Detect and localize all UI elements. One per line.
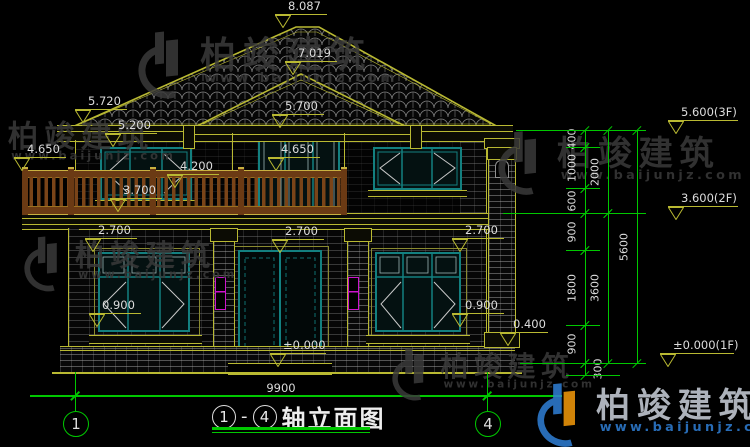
- dimension-chain-line: [585, 130, 586, 375]
- elevation-triangle-icon: [452, 314, 468, 327]
- elevation-triangle-icon: [85, 239, 101, 252]
- drawing-title: 1 - 4 轴立面图: [212, 399, 386, 434]
- elevation-marker: 2.700: [272, 226, 324, 253]
- title-axis-end-bubble: 4: [253, 405, 277, 429]
- level-reference-line: [566, 250, 600, 251]
- elevation-triangle-icon: [668, 121, 684, 134]
- elevation-drawing-canvas: 柏竣建筑www.baijunjz.com柏竣建筑www.baijunjz.com…: [0, 0, 750, 447]
- elevation-marker-label: 5.200: [118, 118, 151, 132]
- annotation-layer: 8.0877.0195.7205.2005.7004.6504.6504.200…: [0, 0, 750, 447]
- dimension-value-label: 600: [566, 190, 579, 211]
- elevation-marker: 8.087: [275, 1, 327, 28]
- elevation-marker-label: 0.900: [465, 298, 498, 312]
- elevation-triangle-icon: [272, 240, 288, 253]
- elevation-marker-label: 5.720: [88, 94, 121, 108]
- dimension-chain-line: [608, 130, 609, 363]
- elevation-marker: 5.600(3F): [668, 107, 738, 134]
- elevation-triangle-icon: [14, 158, 30, 171]
- dimension-chain-line: [637, 130, 638, 363]
- elevation-marker-label: 3.600(2F): [681, 191, 737, 205]
- elevation-triangle-icon: [452, 239, 468, 252]
- elevation-triangle-icon: [275, 15, 291, 28]
- title-axis-start-bubble: 1: [212, 405, 236, 429]
- elevation-marker-label: 4.200: [180, 159, 213, 173]
- elevation-triangle-icon: [167, 175, 183, 188]
- title-text: 轴立面图: [282, 399, 386, 434]
- level-reference-line: [520, 363, 646, 364]
- grid-line-stem: [487, 372, 488, 411]
- level-reference-line: [566, 325, 600, 326]
- elevation-marker-label: ±0.000(1F): [673, 338, 738, 352]
- elevation-marker-label: 2.700: [465, 223, 498, 237]
- elevation-marker-label: ±0.000: [283, 338, 326, 352]
- elevation-marker: 2.700: [452, 225, 504, 252]
- grid-line-stem: [75, 372, 76, 411]
- elevation-marker: 0.900: [452, 300, 504, 327]
- dimension-value-label: 5600: [618, 233, 631, 261]
- elevation-marker: 0.400: [500, 319, 548, 346]
- title-separator: -: [241, 406, 248, 427]
- dimension-value-label: 900: [566, 221, 579, 242]
- level-reference-line: [503, 213, 646, 214]
- dimension-value-label: 2000: [589, 158, 602, 186]
- elevation-marker: 4.650: [268, 144, 320, 171]
- dimension-value-label: 3600: [589, 274, 602, 302]
- elevation-triangle-icon: [500, 333, 516, 346]
- elevation-triangle-icon: [660, 354, 676, 367]
- elevation-triangle-icon: [110, 199, 126, 212]
- elevation-marker: 3.700: [110, 185, 162, 212]
- elevation-triangle-icon: [89, 314, 105, 327]
- elevation-marker: 5.200: [105, 120, 157, 147]
- elevation-marker-label: 0.400: [513, 317, 546, 331]
- grid-bubble: 1: [63, 411, 89, 437]
- elevation-triangle-icon: [105, 134, 121, 147]
- level-reference-line: [516, 130, 646, 131]
- elevation-marker-label: 5.700: [285, 99, 318, 113]
- dimension-value-label: 1000: [566, 154, 579, 182]
- elevation-marker-label: 7.019: [298, 46, 331, 60]
- elevation-marker: ±0.000: [270, 340, 326, 367]
- elevation-marker-label: 3.700: [123, 183, 156, 197]
- elevation-triangle-icon: [75, 110, 91, 123]
- elevation-triangle-icon: [272, 115, 288, 128]
- elevation-marker: 4.200: [167, 161, 219, 188]
- elevation-marker: 0.900: [89, 300, 141, 327]
- dimension-value-label: 1800: [566, 274, 579, 302]
- elevation-marker: 7.019: [285, 48, 337, 75]
- elevation-triangle-icon: [270, 354, 286, 367]
- elevation-marker: 3.600(2F): [668, 193, 738, 220]
- dimension-value-label: 900: [566, 334, 579, 355]
- elevation-marker-label: 4.650: [27, 142, 60, 156]
- elevation-marker: 2.700: [85, 225, 137, 252]
- elevation-triangle-icon: [268, 158, 284, 171]
- elevation-triangle-icon: [668, 207, 684, 220]
- level-reference-line: [566, 188, 600, 189]
- overall-dimension-label: 9900: [255, 381, 307, 395]
- dimension-value-label: 300: [592, 359, 605, 380]
- elevation-marker-label: 8.087: [288, 0, 321, 13]
- elevation-marker-label: 2.700: [285, 224, 318, 238]
- elevation-triangle-icon: [285, 62, 301, 75]
- elevation-marker-label: 4.650: [281, 142, 314, 156]
- elevation-marker: 4.650: [14, 144, 66, 171]
- elevation-marker-label: 2.700: [98, 223, 131, 237]
- level-reference-line: [566, 147, 600, 148]
- elevation-marker-label: 5.600(3F): [681, 105, 737, 119]
- grid-bubble: 4: [475, 411, 501, 437]
- dimension-value-label: 400: [566, 128, 579, 149]
- elevation-marker-label: 0.900: [102, 298, 135, 312]
- elevation-marker: 5.700: [272, 101, 324, 128]
- elevation-marker: ±0.000(1F): [660, 340, 734, 367]
- level-reference-line: [566, 375, 620, 376]
